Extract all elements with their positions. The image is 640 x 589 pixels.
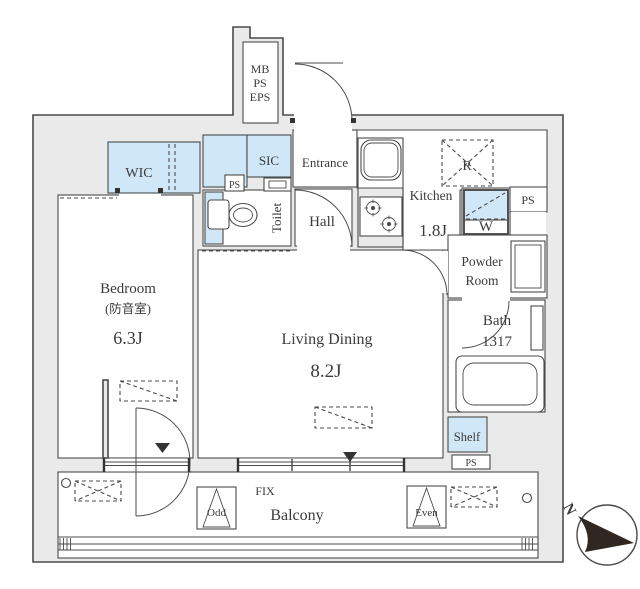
washbasin-icon	[511, 241, 545, 292]
toilet-tank-icon	[208, 200, 229, 229]
powder-counter-area	[511, 212, 546, 236]
kitchen-label: Kitchen	[410, 188, 453, 203]
floor-plan-canvas: MB PS EPS WIC SIC PS Entrance Hall Toile…	[0, 0, 640, 589]
wic-door-jamb-right	[158, 188, 163, 193]
compass-icon	[577, 505, 637, 565]
bath-label: Bath	[483, 313, 512, 329]
hall-door-opening	[297, 245, 350, 251]
shaft-label-mb: MB	[251, 62, 270, 76]
ps-small-label: PS	[229, 180, 240, 191]
hand-basin-icon	[264, 178, 291, 191]
powder-label-1: Powder	[461, 254, 503, 269]
bedroom-window-opening	[103, 458, 190, 472]
entrance-door-opening	[294, 113, 352, 131]
balcony-label: Balcony	[270, 507, 323, 524]
bedroom-size-label: 6.3J	[113, 328, 143, 348]
kitchen-size-label: 1.8J	[419, 221, 447, 240]
living-dining-room	[198, 250, 443, 458]
washer-label: W	[479, 219, 494, 235]
odd-label: Odd	[207, 507, 226, 519]
even-label: Even	[415, 507, 438, 519]
shaft-label-ps: PS	[253, 76, 266, 90]
bath-counter	[531, 306, 543, 350]
hall-label: Hall	[309, 214, 335, 230]
bedroom-sub-label: (防音室)	[105, 301, 151, 316]
wic-door-jamb-left	[115, 188, 120, 193]
washer-box	[464, 190, 508, 220]
bedroom-room	[58, 195, 193, 458]
wic-box	[108, 142, 200, 193]
bath-size-label: 1317	[482, 334, 513, 350]
fix-label: FIX	[255, 484, 275, 498]
sic-label: SIC	[259, 153, 279, 168]
shelf-label: Shelf	[454, 430, 481, 444]
toilet-label: Toilet	[269, 203, 284, 234]
powder-door-opening	[442, 251, 448, 293]
ps-lower-label: PS	[465, 458, 476, 469]
powder-label-2: Room	[465, 273, 499, 288]
refrigerator-label: R	[462, 159, 472, 174]
bedroom-label: Bedroom	[100, 281, 156, 297]
bath-door-opening	[462, 296, 510, 302]
entrance-label: Entrance	[302, 155, 348, 170]
living-label: Living Dining	[281, 331, 372, 348]
shaft-label-eps: EPS	[250, 90, 271, 104]
stove-icon	[360, 197, 402, 236]
living-window-opening	[237, 458, 405, 472]
living-size-label: 8.2J	[310, 361, 341, 382]
kitchen-sink-icon	[361, 140, 401, 180]
floor-plan: MB PS EPS WIC SIC PS Entrance Hall Toile…	[0, 0, 640, 589]
wic-label: WIC	[125, 166, 152, 181]
ps-upper-right-label: PS	[521, 193, 534, 207]
